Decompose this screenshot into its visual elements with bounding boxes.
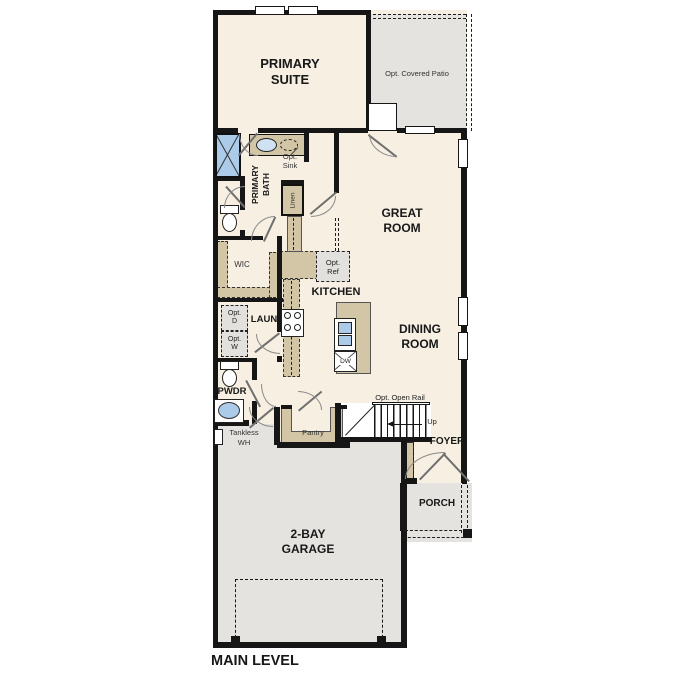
tankless-line: Tankless [222, 428, 266, 438]
window [288, 6, 318, 15]
plan-title: MAIN LEVEL [211, 653, 331, 669]
wall [213, 298, 283, 302]
window [405, 126, 435, 134]
wall [252, 358, 257, 380]
pantry-label: Pantry [294, 428, 332, 437]
floor-plan: DW Opt. Ref Opt. D Opt. W PRIMARY SUITE … [0, 0, 687, 687]
wall [304, 128, 309, 162]
wall [335, 437, 432, 442]
primary-suite-label: PRIMARY SUITE [240, 56, 340, 88]
open-rail-label: Opt. Open Rail [368, 393, 432, 402]
sink-basin [338, 322, 352, 334]
dining-room-line: ROOM [380, 337, 460, 352]
wall [277, 442, 350, 448]
patio-door-landing [368, 103, 397, 131]
powder-label: PWDR [212, 386, 252, 397]
tankless-label: Tankless WH [222, 428, 266, 447]
porch-dashed-edge [403, 537, 469, 538]
great-room-line: GREAT [362, 206, 442, 221]
wall [277, 356, 282, 362]
laundry-label: LAUN [248, 314, 280, 325]
dishwasher-label: DW [336, 358, 355, 365]
window [458, 139, 468, 168]
wic-label: WIC [226, 260, 258, 269]
linen-label: Linen [281, 184, 304, 216]
opt-sink-line: Opt. [276, 152, 304, 161]
stair-rail [372, 402, 430, 405]
wall [400, 483, 406, 531]
wall [213, 10, 218, 648]
dishwasher: DW [334, 351, 357, 372]
garage-line: GARAGE [268, 542, 348, 557]
window [255, 6, 285, 15]
vanity-sink [256, 138, 277, 152]
wall [258, 128, 368, 133]
opt-w-line: Opt. [228, 336, 241, 345]
porch-dashed-edge [405, 530, 462, 531]
burner [284, 324, 291, 331]
primary-bath-text: PRIMARY BATH [249, 165, 270, 204]
kitchen-opening-marker [335, 218, 336, 251]
sink-basin [338, 335, 352, 346]
opt-w-line: W [231, 344, 238, 353]
dining-room-line: DINING [380, 322, 460, 337]
garage-label: 2-BAY GARAGE [268, 527, 348, 557]
foyer-label: FOYER [426, 436, 468, 447]
garage-line: 2-BAY [268, 527, 348, 542]
patio-label: Opt. Covered Patio [368, 69, 466, 78]
wall [277, 236, 282, 302]
kitchen-label: KITCHEN [306, 286, 366, 298]
toilet-bowl [222, 369, 237, 387]
opt-sink-line: Sink [276, 161, 304, 170]
up-arrow-head [387, 421, 394, 427]
stair-treads [374, 404, 430, 437]
tankless-line: WH [222, 438, 266, 448]
optional-washer: Opt. W [221, 331, 248, 357]
pantry-jamb [337, 405, 347, 409]
patio-dashed-edge [466, 14, 467, 131]
burner [284, 312, 291, 319]
opt-ref-line: Opt. [326, 258, 340, 267]
primary-suite-line: PRIMARY [240, 56, 340, 72]
porch-label: PORCH [413, 498, 461, 509]
patio-dashed-edge [471, 14, 472, 131]
primary-bath-line: PRIMARY [249, 165, 260, 204]
linen-cabinet-strip [287, 216, 302, 252]
opt-d-line: Opt. [228, 310, 241, 319]
stove [281, 309, 304, 337]
burner [294, 324, 301, 331]
great-room-line: ROOM [362, 221, 442, 236]
dining-room-label: DINING ROOM [380, 322, 460, 352]
island-sink-unit [334, 318, 356, 351]
wall [274, 407, 280, 445]
porch-dashed-edge [461, 485, 462, 533]
toilet-bowl [222, 213, 237, 232]
great-room-label: GREAT ROOM [362, 206, 442, 236]
burner [294, 312, 301, 319]
porch-dashed-edge [467, 485, 468, 533]
patio-dashed-edge [368, 18, 466, 19]
primary-bath-line: BATH [260, 165, 271, 204]
pantry-jamb [281, 405, 292, 409]
opt-d-line: D [232, 318, 237, 327]
kitchen-opening-marker [338, 218, 339, 251]
kitchen-counter-top [280, 251, 318, 279]
garage-door-dashed [235, 579, 383, 643]
wall [334, 133, 339, 193]
opt-sink-label: Opt. Sink [276, 152, 304, 170]
powder-sink [218, 402, 240, 419]
wall [397, 128, 405, 133]
opt-ref-line: Ref [327, 267, 339, 276]
optional-dryer: Opt. D [221, 305, 248, 331]
patio-dashed-edge [368, 14, 466, 15]
primary-suite-line: SUITE [240, 72, 340, 88]
linen-text: Linen [289, 192, 296, 208]
up-arrow-line [393, 424, 422, 425]
linen-strip-divider [293, 218, 294, 250]
optional-refrigerator: Opt. Ref [316, 251, 350, 282]
up-label: Up [423, 417, 441, 426]
